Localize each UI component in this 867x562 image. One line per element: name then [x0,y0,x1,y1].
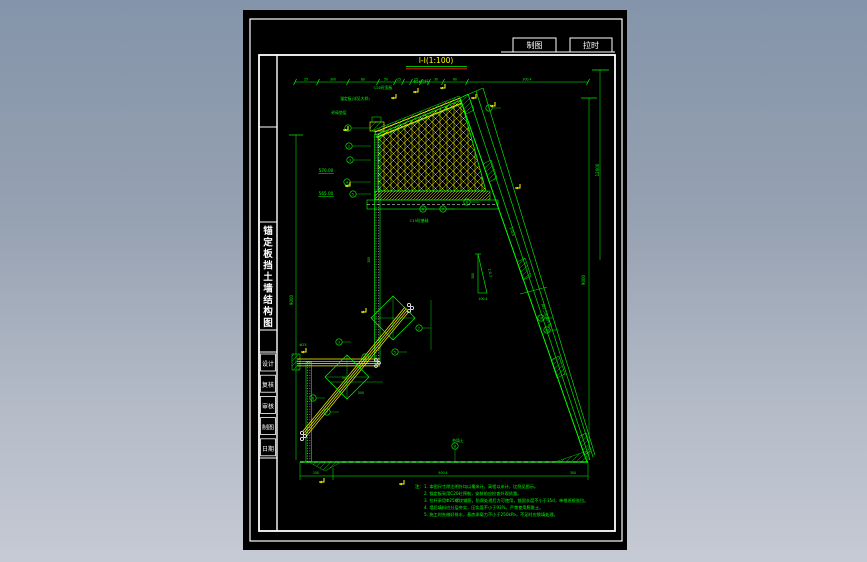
annotation-label: 300 [471,273,475,279]
band-hatch [517,258,531,280]
cad-drawing: 锚定板挡土墙结构图 设计复核审核制图日期 制图拉时 Ⅰ-Ⅰ(1:100) [243,10,627,550]
drawing-title-char: 图 [263,318,273,329]
annotation-label: 砂砾垫层 [331,110,346,115]
titleblock-cell-label: 审核 [262,402,274,410]
annotation-label: Φ25 [300,343,307,347]
drawing-title-char: 构 [263,306,273,318]
flag-arrow-icon [399,483,402,486]
drawing-title-char: 锚 [263,225,273,237]
view-title: Ⅰ-Ⅰ(1:100) [419,56,454,65]
annotation-label: 300 [330,78,336,82]
coping-block [370,122,384,131]
ground-hatch [555,451,587,462]
cad-viewport[interactable]: 锚定板挡土墙结构图 设计复核审核制图日期 制图拉时 Ⅰ-Ⅰ(1:100) [243,10,627,550]
leader-number: 8 [466,200,468,204]
reinforcement-mesh [378,100,486,191]
flag-arrow-icon [440,87,443,90]
leader-number: 4 [346,180,348,184]
annotation-label: 锚定板(详见大样) [340,96,370,101]
titleblock-cell-label: 日期 [262,445,274,453]
leader-number: 6 [312,396,314,400]
annotation-label: 50 [384,78,388,82]
coping-block [372,117,381,122]
leader-number: 1 [488,106,490,110]
leader-number: 5 [352,192,354,196]
view-title-group: Ⅰ-Ⅰ(1:100) [406,56,467,69]
annotation-label: 30 [434,78,438,82]
tie-rod-bundle [297,359,380,366]
titleblock-cell-label: 复核 [262,381,274,389]
title-block: 锚定板挡土墙结构图 设计复核审核制图日期 [259,55,277,531]
leader-number: 5 [394,350,396,354]
annotation-label: 50 [342,376,346,380]
leader-number: 3 [349,158,351,162]
flag-arrow-icon [319,481,322,484]
annotation-label: 150 [313,471,319,475]
annotation-label: C20砼面板 [374,85,393,90]
flag-arrow-icon [391,97,394,100]
annotation-label: 100.4 [478,297,487,301]
drawing-title-char: 定 [262,237,273,249]
titleblock-cell-label: 制图 [262,424,274,432]
ground-line-group [300,451,588,480]
drawing-title-vertical: 锚定板挡土墙结构图 [262,225,273,329]
annotation-label: 1:0.3 [487,268,493,277]
annotation-label: 25 [397,78,401,82]
toolbar-tabs: 制图拉时 [501,38,615,52]
annotation-label: 45° [377,338,383,342]
leader-number: 4 [364,355,366,359]
annotation-label: 300 [367,257,371,263]
annotation-label: 900.4 [438,471,447,475]
flag-arrow-icon [515,187,518,190]
tie-end-hatch [292,354,300,370]
ground-hatch [309,462,341,471]
note-line: 5. 施工时先做好排水，基底承载力不小于250kPa，不足时应换填处理。 [424,511,558,518]
drawing-title-char: 挡 [263,260,273,272]
annotation-label: 60 [453,78,457,82]
leader-number: 2 [418,326,420,330]
anchor-rod-bundle [303,307,409,435]
leader-number: 8 [454,444,456,448]
slope-triangle [475,254,487,293]
annotation-label: 500 [358,391,364,395]
annotation-label: C15砼基础 [410,218,429,223]
band-hatch [551,356,565,378]
leader-number: 10 [545,328,549,332]
flag-arrow-icon [301,351,304,354]
annotation-label: 565.00 [319,191,334,196]
drawing-title-char: 土 [263,271,273,283]
note-line: 3. 拉杆采用Φ25螺纹钢筋，防腐处理后方可使用，锚固长度不小于35d，单根逐根… [424,497,588,504]
notes-prefix: 注： [415,483,424,490]
paper-borders [250,19,622,541]
flag-arrow-icon [471,97,474,100]
outer-border [250,19,622,541]
annotation-label: 25 [304,78,308,82]
bottom-beam [375,191,490,200]
note-line: 4. 墙后填料应分层夯实，压实度不小于93%，严禁使用膨胀土。 [424,504,543,511]
front-wall [306,362,312,462]
annotation-label: 300 [570,471,576,475]
band-tick [520,287,547,294]
drawing-title-char: 结 [262,294,273,306]
annotation-label: 570.00 [319,168,334,173]
desktop-background: 锚定板挡土墙结构图 设计复核审核制图日期 制图拉时 Ⅰ-Ⅰ(1:100) [0,0,867,562]
flag-arrow-icon [343,129,346,132]
annotation-label: 12000 [595,163,600,176]
band-hatch [483,160,497,182]
drawing-title-char: 板 [263,248,273,260]
annotation-label: 夯填土 [452,438,464,443]
leader-number: 6 [422,207,424,211]
slope-band [460,88,595,462]
leader-number: 2 [348,144,350,148]
annotation-label: 9000 [581,274,586,285]
annotation-label: 300.4 [522,78,531,82]
anchor-detail [292,296,431,462]
note-line: 1. 本图尺寸除注明外均以毫米计，高程以米计，比例见图示。 [424,483,538,490]
tab-label: 拉时 [583,40,599,50]
leader-number: 7 [326,410,328,414]
flag-arrow-icon [413,91,416,94]
annotation-label: Φ25拉杆 [413,79,429,84]
leader-number: 3 [338,340,340,344]
annotation-label: 80 [361,78,365,82]
note-line: 2. 锚定板采用C20砼预制，安装前应检查外观质量。 [424,490,521,497]
anchored-wall-panel [367,96,498,362]
tab-label: 制图 [527,40,543,50]
flag-arrow-icon [361,311,364,314]
leader-number: 7 [442,207,444,211]
titleblock-cells: 设计复核审核制图日期 [261,354,276,456]
notes-block: 注：1. 本图尺寸除注明外均以毫米计，高程以米计，比例见图示。2. 锚定板采用C… [415,483,588,518]
drawing-title-char: 墙 [263,283,273,295]
annotation-label: 9000 [289,294,294,305]
leader-number: 9 [540,316,542,320]
titleblock-cell-label: 设计 [262,360,274,368]
